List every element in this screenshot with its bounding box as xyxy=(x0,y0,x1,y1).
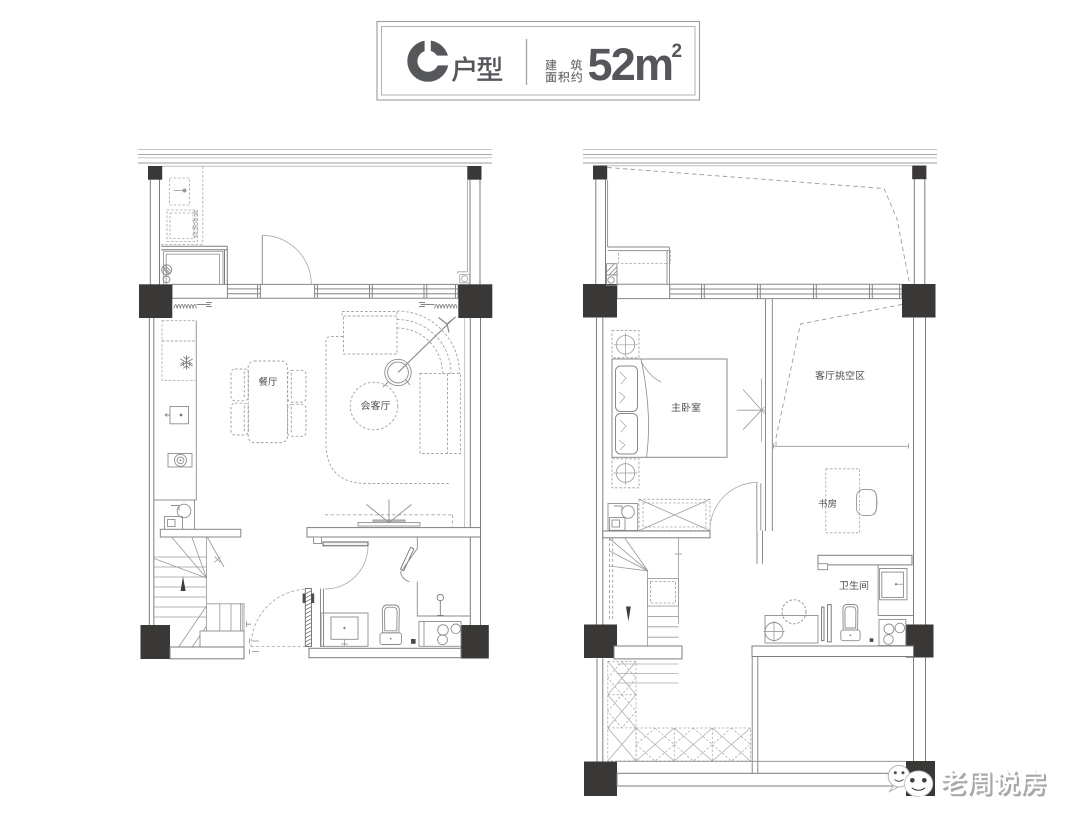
svg-text:2: 2 xyxy=(672,41,683,62)
svg-text:52m: 52m xyxy=(588,39,673,90)
